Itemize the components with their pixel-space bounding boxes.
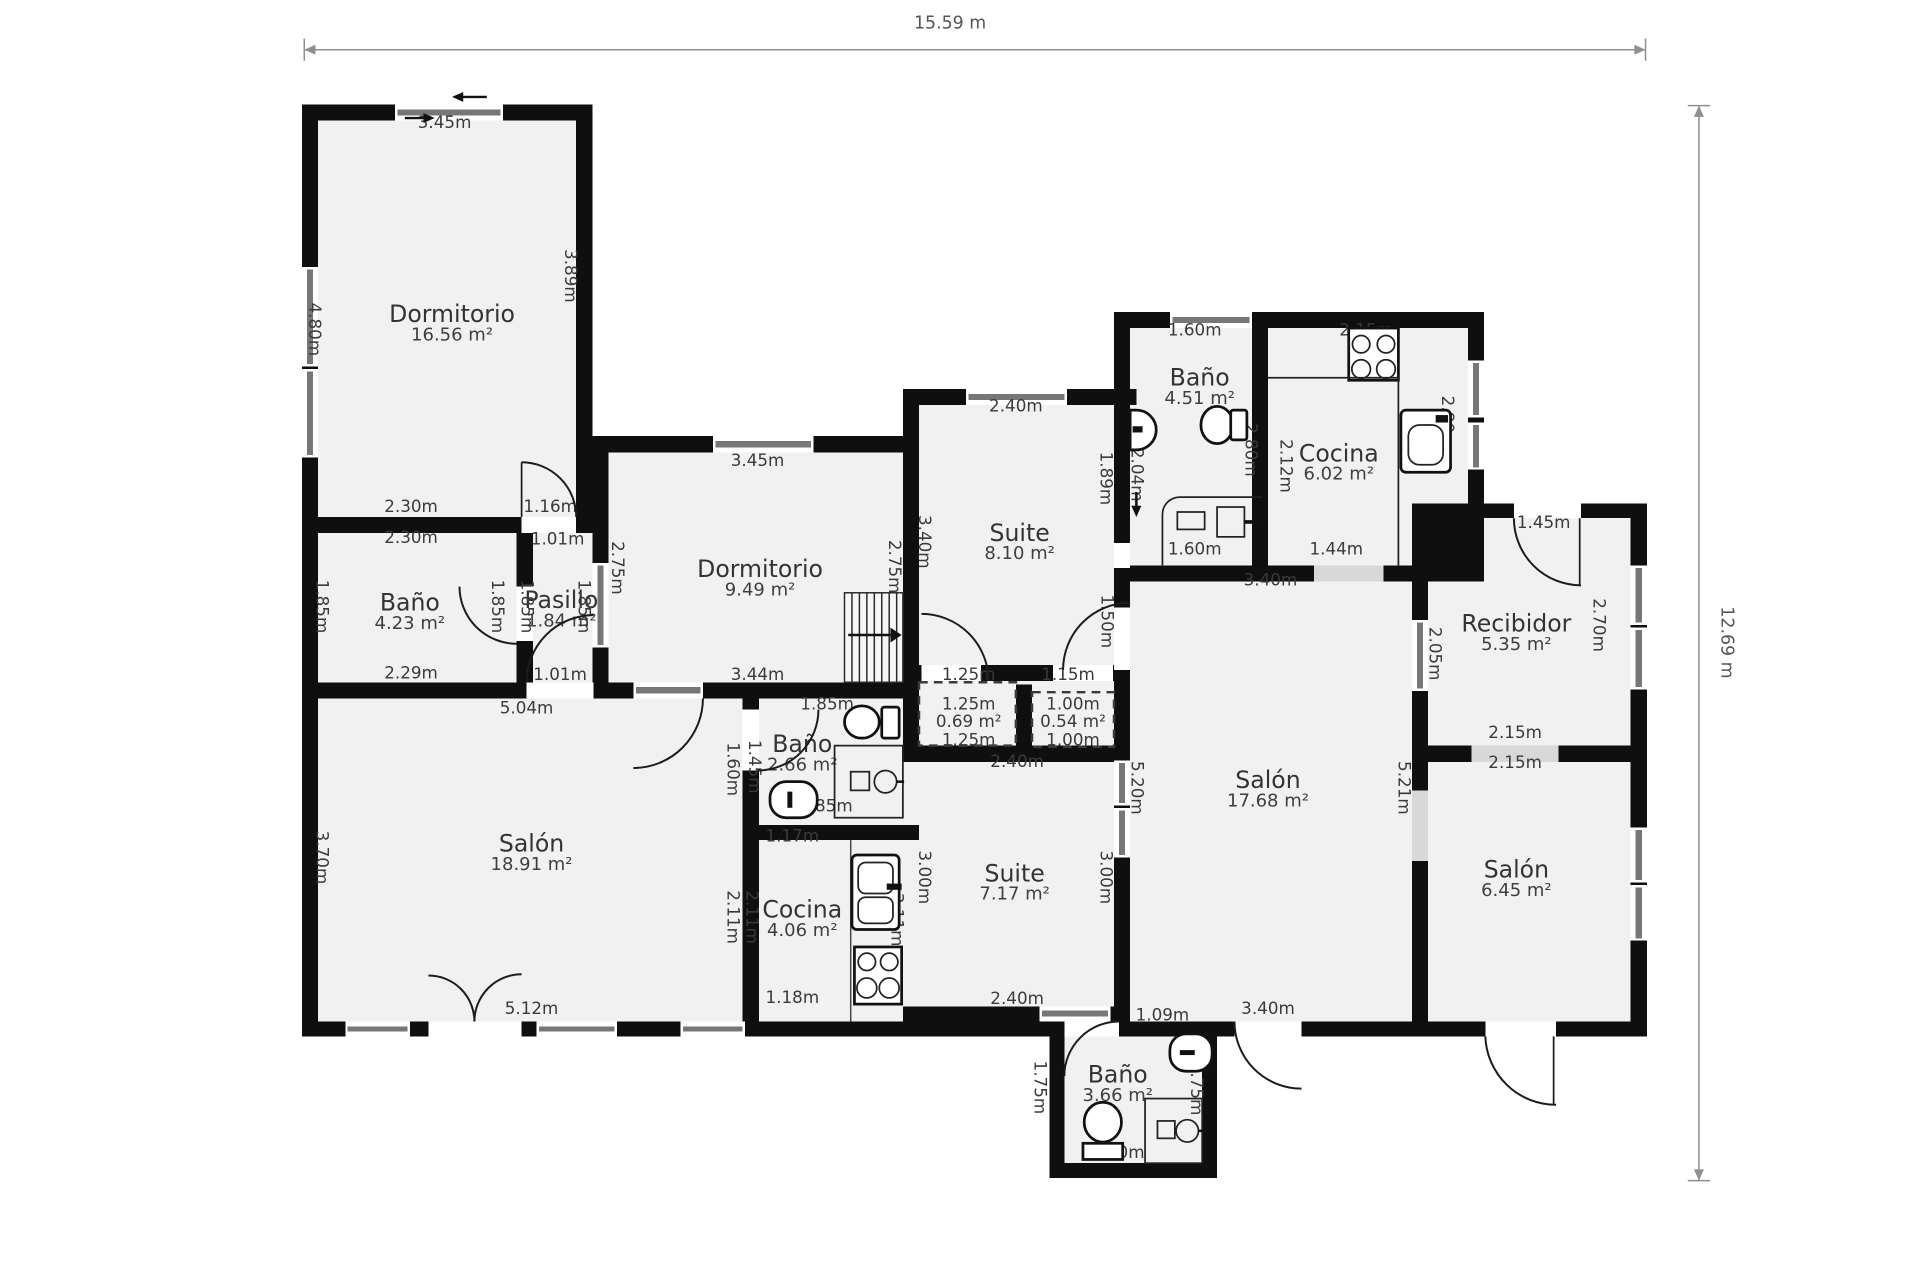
measurement-label: 3.40m <box>1244 569 1298 589</box>
measurement-label: 2.40m <box>989 395 1043 415</box>
measurement-label: 3.40m <box>1241 998 1295 1018</box>
measurement-label: 1.85m <box>313 580 333 634</box>
measurement-label: 2.30m <box>384 527 438 547</box>
measurement-label: 3.89m <box>561 249 581 303</box>
measurement-label: 2.70m <box>1589 598 1609 652</box>
floorplan-svg: Dormitorio16.56 m²Baño4.23 m²Pasillo1.84… <box>0 0 1920 1280</box>
measurement-label: 1.01m <box>531 528 585 548</box>
measurement-label: 1.85m <box>575 580 595 634</box>
room-area-label: 9.49 m² <box>725 579 796 600</box>
ruler-arrow-right-icon <box>1634 45 1645 55</box>
measurement-label: 1.45m <box>1517 512 1571 532</box>
stove-icon <box>854 947 901 1004</box>
room-area-label: 16.56 m² <box>411 325 493 346</box>
ruler-arrow-left-icon <box>304 45 315 55</box>
room-area-label: 4.23 m² <box>375 613 446 634</box>
measurement-label: 1.00m <box>1046 730 1100 750</box>
kitchen-sink-icon <box>852 855 902 930</box>
measurement-label: 2.40m <box>990 988 1044 1008</box>
measurement-label: 1.60m <box>724 742 744 796</box>
measurement-label: 2.40m <box>990 751 1044 771</box>
stairs <box>845 593 903 682</box>
measurement-label: 3.70m <box>313 831 333 885</box>
ruler-arrow-up-icon <box>1694 106 1704 117</box>
top-ruler: 15.59 m <box>304 14 1645 61</box>
right-ruler: 12.69 m <box>1688 106 1736 1181</box>
measurement-label: 1.15m <box>1041 664 1095 684</box>
room-area-label: 8.10 m² <box>984 543 1055 564</box>
measurement-label: 0.69 m² <box>936 711 1002 731</box>
measurement-label: 2.75m <box>608 541 628 595</box>
toilet-icon <box>1083 1102 1123 1159</box>
measurement-label: 3.45m <box>731 450 785 470</box>
bidet-icon <box>770 782 817 818</box>
measurement-label: 1.09m <box>1136 1004 1190 1024</box>
measurement-label: 1.85m <box>518 580 538 634</box>
room-area-label: 3.66 m² <box>1082 1085 1153 1106</box>
measurement-label: 3.44m <box>731 664 785 684</box>
measurement-label: 2.11m <box>724 890 744 944</box>
measurement-label: 2.29m <box>384 663 438 683</box>
measurement-label: 1.60m <box>1168 538 1222 558</box>
room-area-label: 5.35 m² <box>1481 634 1552 655</box>
measurement-label: 2.75m <box>885 540 905 594</box>
measurement-label: 5.12m <box>505 998 559 1018</box>
measurement-label: 2.05m <box>1425 627 1445 681</box>
measurement-label: 1.89m <box>1096 452 1116 506</box>
room-area-label: 7.17 m² <box>979 884 1050 905</box>
room-area-label: 6.02 m² <box>1304 464 1375 485</box>
room-area-label: 6.45 m² <box>1481 880 1552 901</box>
measurement-label: 5.21m <box>1394 761 1414 815</box>
wall-sink-icon <box>1130 410 1156 450</box>
measurement-label: 1.44m <box>1309 538 1363 558</box>
measurement-label: 1.16m <box>523 496 577 516</box>
room-area-label: 18.91 m² <box>491 854 573 875</box>
kitchen-sink-icon <box>1401 410 1451 472</box>
measurement-label: 4.80m <box>305 302 325 356</box>
total-width-label: 15.59 m <box>914 14 986 34</box>
ruler-arrow-down-icon <box>1694 1169 1704 1180</box>
toilet-icon <box>845 706 900 738</box>
measurement-label: 0.54 m² <box>1040 711 1106 731</box>
measurement-label: 2.11m <box>742 890 762 944</box>
floorplan-page: Dormitorio16.56 m²Baño4.23 m²Pasillo1.84… <box>0 0 1920 1280</box>
room-area-label: 4.51 m² <box>1164 388 1235 409</box>
measurement-label: 2.15m <box>1488 752 1542 772</box>
measurement-label: 3.00m <box>915 851 935 905</box>
measurement-label: 1.18m <box>766 987 820 1007</box>
measurement-label: 1.75m <box>1030 1061 1050 1115</box>
stove-icon <box>1349 328 1399 380</box>
measurement-label: 1.25m <box>942 730 996 750</box>
measurement-label: 5.20m <box>1127 761 1147 815</box>
measurement-label: 1.45m <box>745 740 765 794</box>
arrow-left-icon <box>452 92 463 102</box>
total-height-label: 12.69 m <box>1716 606 1736 678</box>
measurement-label: 2.30m <box>384 496 438 516</box>
measurement-label: 1.85m <box>800 694 854 714</box>
measurement-label: 2.12m <box>1276 439 1296 493</box>
toilet-icon <box>1201 406 1247 443</box>
measurement-label: 3.40m <box>915 515 935 569</box>
bidet-icon <box>1170 1034 1212 1071</box>
measurement-label: 1.01m <box>533 664 587 684</box>
measurement-label: 1.60m <box>1168 320 1222 340</box>
room-area-label: 4.06 m² <box>767 920 838 941</box>
measurement-label: 3.00m <box>1096 851 1116 905</box>
room-area-label: 2.66 m² <box>767 755 838 776</box>
measurement-label: 1.85m <box>488 580 508 634</box>
measurement-label: 2.15m <box>1488 722 1542 742</box>
measurement-label: 1.50m <box>1098 595 1118 649</box>
measurement-label: 5.04m <box>500 697 554 717</box>
measurement-label: 1.17m <box>766 825 820 845</box>
room-area-label: 17.68 m² <box>1227 791 1309 812</box>
